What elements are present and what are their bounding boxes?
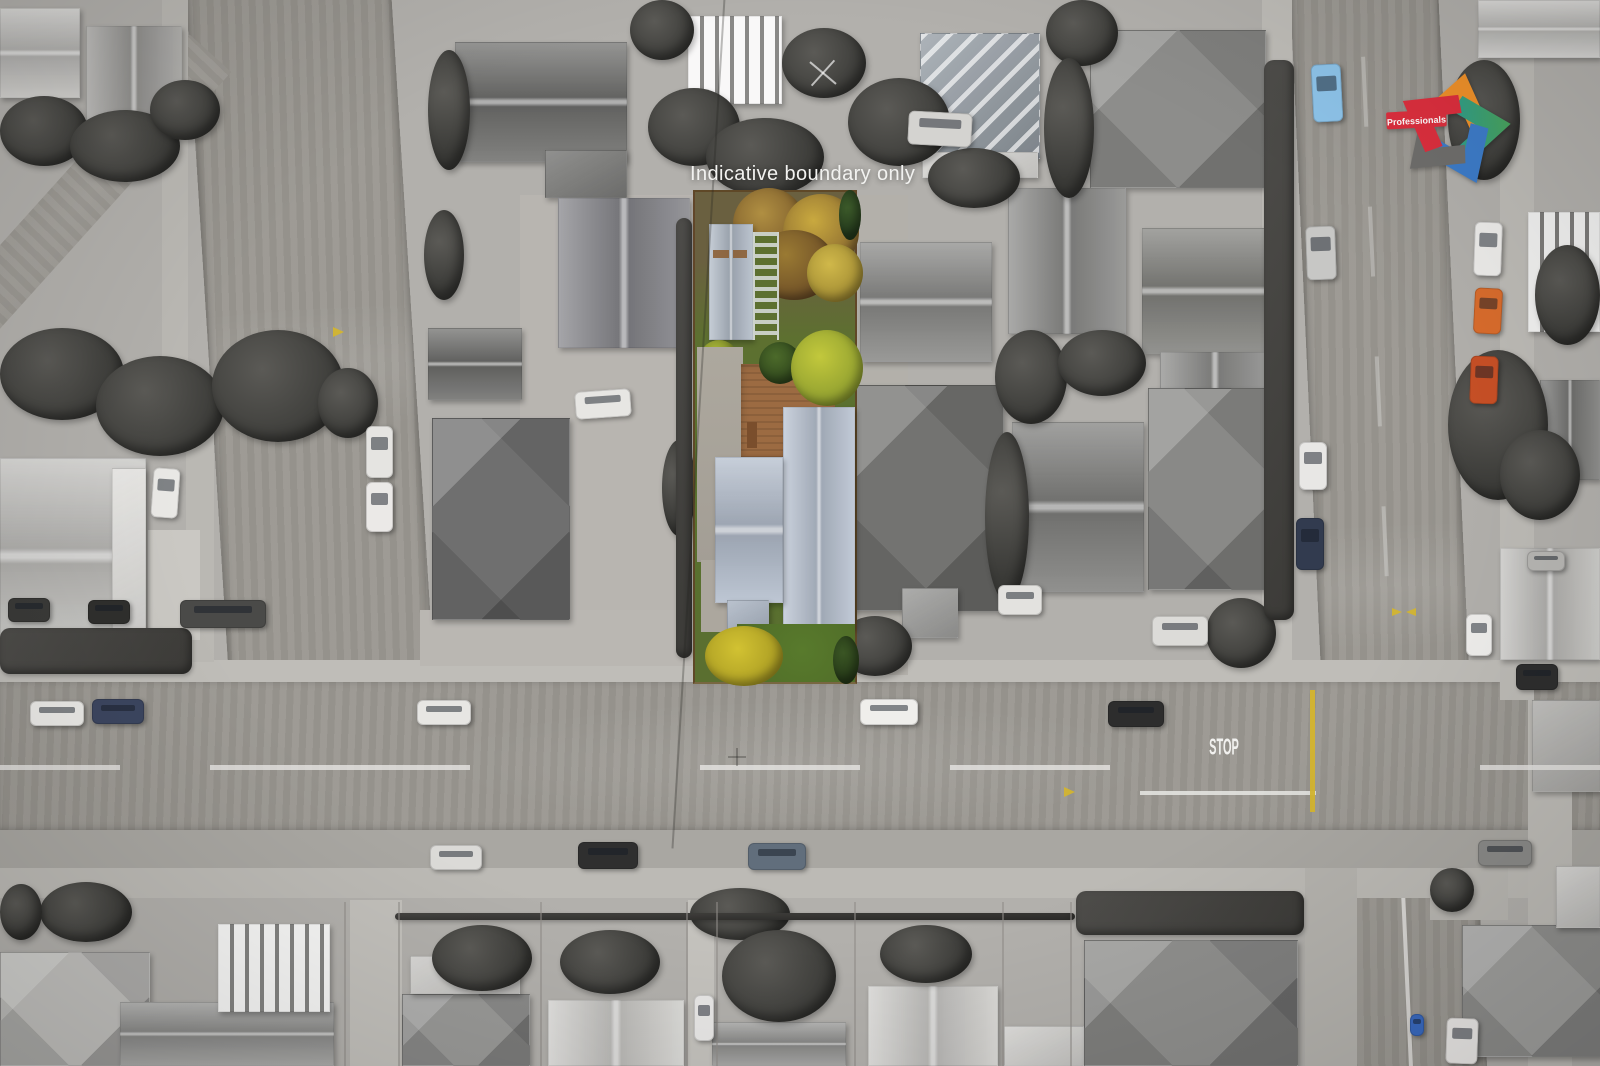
tree (985, 432, 1029, 602)
center-line-dash (1375, 356, 1382, 426)
road-line (1480, 765, 1600, 770)
power-pole (736, 748, 738, 766)
house-roof (218, 924, 330, 1012)
pavement (1305, 868, 1357, 1066)
tree (995, 330, 1067, 424)
glasshouse-frame (753, 232, 779, 340)
tree (1058, 330, 1146, 396)
car (1108, 701, 1164, 727)
tree (96, 356, 224, 456)
car (8, 598, 50, 622)
road-line (950, 765, 1110, 770)
car (1299, 442, 1327, 490)
car (578, 842, 638, 869)
street-main (0, 678, 1600, 832)
car (1152, 616, 1208, 646)
house-roof (1012, 422, 1144, 592)
logo-banner: Professionals (1386, 109, 1447, 129)
logo-star (1378, 60, 1528, 205)
hedge (395, 913, 1075, 920)
car (907, 110, 973, 147)
car (1478, 840, 1532, 866)
car (1469, 356, 1499, 405)
tree-dark-green (839, 190, 861, 240)
tree (40, 882, 132, 942)
car (1516, 664, 1558, 690)
car (1296, 518, 1324, 570)
pavement (0, 868, 1600, 898)
road-line (1310, 690, 1315, 812)
house-roof (432, 418, 570, 620)
tree (424, 210, 464, 300)
car (366, 426, 393, 478)
professionals-logo: Professionals (1378, 55, 1528, 205)
house-roof (1008, 188, 1126, 334)
tree (560, 930, 660, 994)
car (150, 467, 180, 519)
car (1473, 287, 1503, 334)
road-line (1140, 791, 1316, 795)
car (88, 600, 130, 624)
car (860, 699, 918, 725)
tree (0, 884, 42, 940)
house-roof (428, 328, 522, 400)
tree-yellow (705, 626, 783, 686)
house-roof (902, 588, 958, 638)
hedge (0, 628, 192, 674)
car (30, 701, 84, 726)
house-roof (0, 8, 80, 98)
house-roof (848, 385, 1004, 611)
house-roof (548, 1000, 684, 1066)
tree (432, 925, 532, 991)
autumn-tree (807, 244, 863, 302)
tree-bright-green (791, 330, 863, 406)
house-roof (1148, 388, 1268, 590)
car (1527, 551, 1565, 571)
house-roof (868, 986, 998, 1066)
garden-shed-roof (709, 224, 753, 340)
hedge (1076, 891, 1304, 935)
fence-line (398, 902, 400, 1066)
subject-property (693, 190, 857, 684)
house-roof-main (783, 407, 855, 629)
house-roof (1478, 0, 1600, 58)
hedge (676, 218, 692, 658)
house-roof (1532, 700, 1600, 792)
fence-line (854, 902, 856, 1066)
house-roof (1142, 228, 1270, 354)
road-line (210, 765, 470, 770)
tree (880, 925, 972, 983)
tree (1046, 0, 1118, 66)
tree (928, 148, 1020, 208)
fence-line (540, 902, 542, 1066)
center-line-dash (1361, 57, 1368, 127)
tree (722, 930, 836, 1022)
shed-window (733, 250, 747, 258)
house-roof (1462, 925, 1600, 1057)
tree (630, 0, 694, 60)
tree (1430, 868, 1474, 912)
stop-road-marking: STOP (1200, 735, 1248, 760)
house-roof-wing (715, 457, 783, 603)
car (694, 995, 714, 1041)
house-roof (402, 994, 530, 1066)
fence-line (1070, 902, 1072, 1066)
car (1466, 614, 1492, 656)
tree (1044, 58, 1094, 198)
boundary-note-text: Indicative boundary only (690, 163, 915, 186)
car (1305, 225, 1337, 280)
car (92, 699, 144, 724)
hedge (1264, 60, 1294, 620)
house-roof (1084, 940, 1298, 1066)
fence-line (716, 902, 718, 1066)
road-line (0, 765, 120, 770)
fence-line (344, 902, 346, 1066)
house-roof (860, 242, 992, 362)
car (1473, 222, 1503, 277)
car (574, 388, 632, 420)
fence-line (686, 902, 688, 1066)
car (998, 585, 1042, 615)
house-roof (545, 150, 627, 198)
tree (428, 50, 470, 170)
house-roof (1004, 1026, 1084, 1066)
car (366, 482, 393, 532)
tree (1535, 245, 1600, 345)
car (748, 843, 806, 870)
car (1445, 1017, 1479, 1064)
fence-line (1002, 902, 1004, 1066)
tree (782, 28, 866, 98)
pavement (350, 900, 402, 1066)
aerial-photo: Indicative boundary only STOP Profession… (0, 0, 1600, 1066)
tree (1500, 430, 1580, 520)
car (1410, 1014, 1424, 1036)
hedge-dark (833, 636, 859, 684)
shed-window (713, 250, 729, 258)
center-line-dash (1368, 207, 1375, 277)
deck-bench (747, 422, 757, 448)
tree (150, 80, 220, 140)
car (430, 845, 482, 870)
house-roof (1556, 866, 1600, 928)
car (417, 700, 471, 725)
house-roof (712, 1022, 846, 1066)
road-line (700, 765, 860, 770)
center-line-dash (1382, 506, 1389, 576)
car (1311, 63, 1344, 122)
house-roof (1090, 30, 1266, 188)
house-roof (455, 42, 627, 162)
car (180, 600, 266, 628)
house-roof (558, 198, 690, 348)
